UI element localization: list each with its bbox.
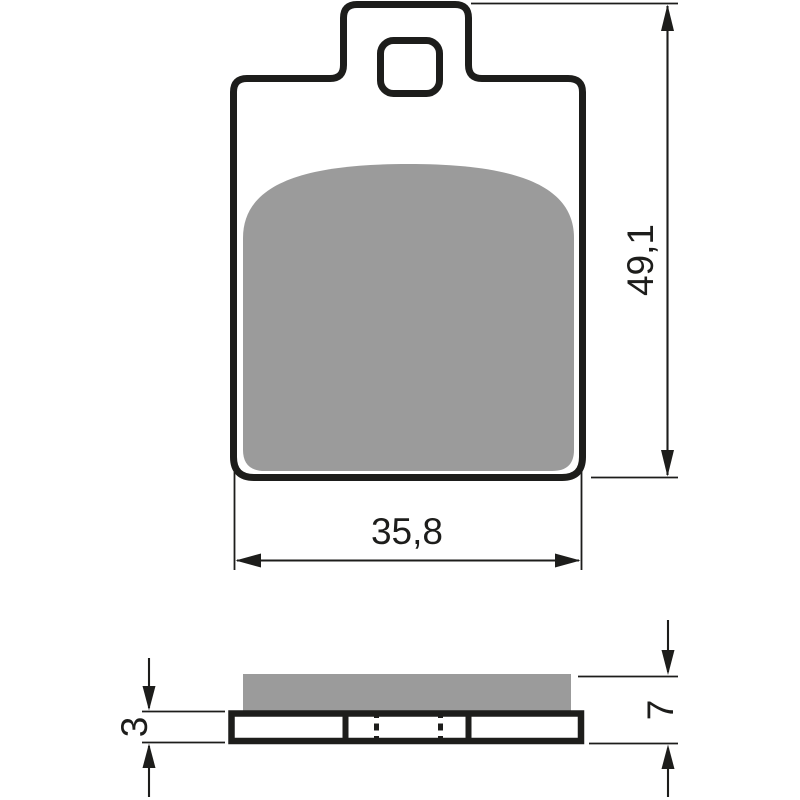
overall-thickness-dimension: 7 xyxy=(578,620,681,797)
arrowhead-down xyxy=(662,650,675,675)
arrowhead-down xyxy=(143,686,156,711)
arrowhead-down xyxy=(661,450,674,477)
friction-material-side xyxy=(243,674,571,712)
arrowhead-left xyxy=(236,554,262,568)
arrowhead-up xyxy=(662,745,675,770)
front-view xyxy=(234,5,583,478)
arrowhead-right xyxy=(555,554,581,568)
arrowhead-up xyxy=(143,744,156,769)
side-view xyxy=(232,674,582,743)
width-dimension: 35,8 xyxy=(235,470,582,570)
arrowhead-up xyxy=(661,5,674,32)
friction-material xyxy=(243,164,574,471)
mounting-hole xyxy=(381,41,440,94)
backplate-side xyxy=(232,714,582,742)
width-dimension-label: 35,8 xyxy=(371,511,443,552)
overall-thickness-label: 7 xyxy=(640,700,681,721)
backplate-thickness-dimension: 3 xyxy=(114,658,225,797)
brake-pad-technical-drawing: 49,1 35,8 3 7 xyxy=(0,0,800,800)
drawing-canvas: 49,1 35,8 3 7 xyxy=(0,0,800,800)
backplate-thickness-label: 3 xyxy=(114,717,155,738)
height-dimension-label: 49,1 xyxy=(620,224,661,296)
